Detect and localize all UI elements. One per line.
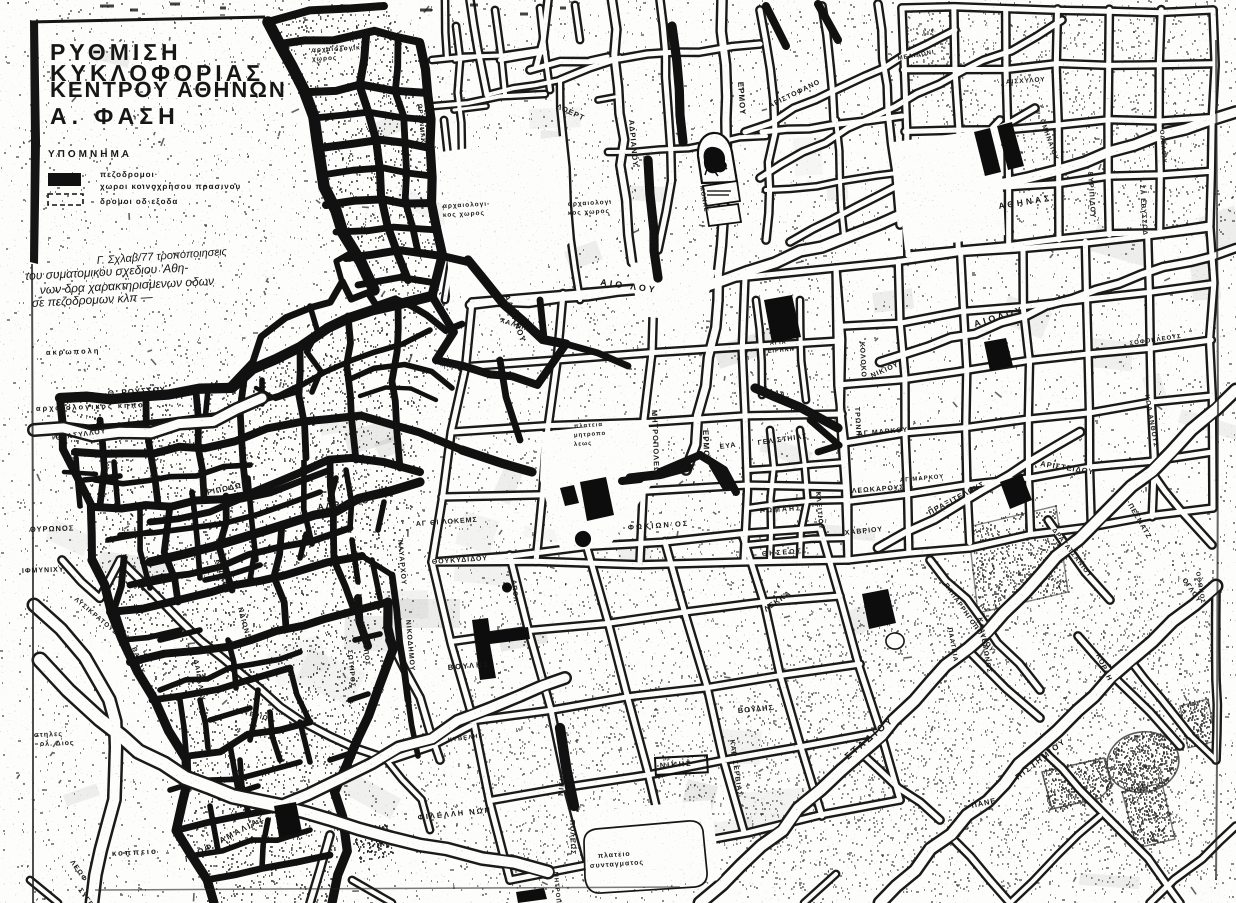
- svg-text:ΠΟΛΕΩΣ: ΠΟΛΕΩΣ: [568, 820, 576, 856]
- svg-text:λεως: λεως: [574, 440, 593, 448]
- svg-text:ΙΦΜΥΝΙΧΥ: ΙΦΜΥΝΙΧΥ: [22, 567, 65, 575]
- svg-text:στηλες: στηλες: [34, 730, 63, 739]
- svg-text:χωρος: χωρος: [312, 55, 338, 63]
- svg-text:Α. ΦΑΣΗ: Α. ΦΑΣΗ: [50, 103, 180, 129]
- svg-text:δρομοι οδ·εξοδα: δρομοι οδ·εξοδα: [100, 197, 178, 206]
- svg-text:ΥΠΟΜΝΗΜΑ: ΥΠΟΜΝΗΜΑ: [48, 149, 132, 160]
- svg-text:πεζοδρομοι·: πεζοδρομοι·: [100, 170, 158, 179]
- svg-text:ΚΕΝΤΡΟΥ ΑΘΗΝΩΝ: ΚΕΝΤΡΟΥ ΑΘΗΝΩΝ: [50, 77, 287, 102]
- svg-text:ακρωπολη: ακρωπολη: [46, 346, 101, 357]
- svg-text:ΕΡΜΟΥ: ΕΡΜΟΥ: [701, 430, 711, 464]
- svg-text:ΘΥΡΩΝΟΣ: ΘΥΡΩΝΟΣ: [30, 523, 75, 534]
- svg-text:χωροι κοινοχρησου πρασινου: χωροι κοινοχρησου πρασινου: [100, 182, 241, 191]
- svg-text:ολ. Διος: ολ. Διος: [40, 739, 75, 748]
